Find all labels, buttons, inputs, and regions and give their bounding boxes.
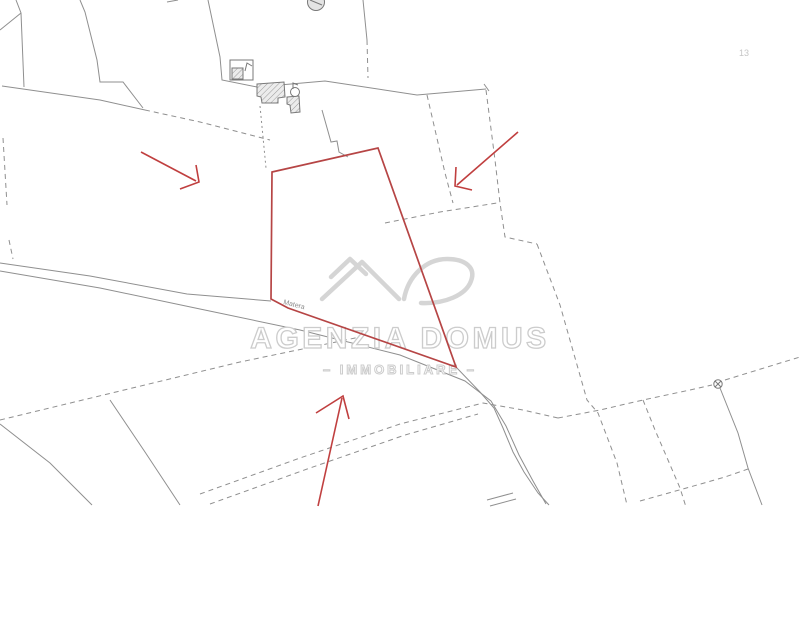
building-hatched-small: [232, 68, 243, 79]
flag-symbol-icon: [245, 63, 252, 71]
cadastral-map-page: AGENZIA DOMUS – IMMOBILIARE – Matera 13: [0, 0, 800, 633]
water-tank-circle-icon: [308, 0, 325, 11]
watermark-logo-house-icon: [322, 259, 472, 303]
arrow-upper-left-icon: [141, 152, 199, 189]
boundary-lines: [0, 0, 800, 507]
well-circle-icon: [291, 88, 300, 97]
arrow-upper-right-icon: [455, 132, 518, 190]
watermark-tagline-text: – IMMOBILIARE –: [323, 362, 477, 377]
watermark: AGENZIA DOMUS – IMMOBILIARE –: [250, 259, 549, 377]
survey-marker-icon: [714, 380, 722, 388]
annotation-arrows: [141, 132, 518, 506]
building-hatched-2: [287, 96, 300, 113]
road-lines: [0, 263, 549, 505]
cadastral-map-svg: AGENZIA DOMUS – IMMOBILIARE – Matera 13: [0, 0, 800, 633]
building-hatched-1: [257, 82, 285, 103]
sheet-number-label: 13: [739, 48, 749, 58]
watermark-brand-text: AGENZIA DOMUS: [250, 322, 549, 355]
